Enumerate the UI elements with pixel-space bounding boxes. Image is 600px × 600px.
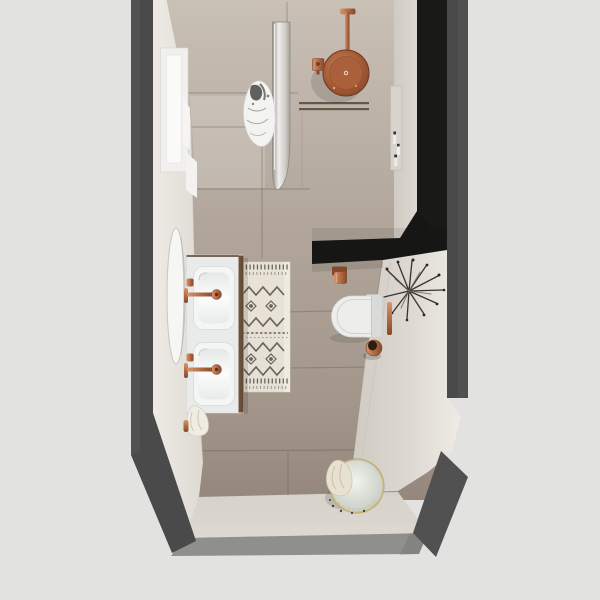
- double-vanity[interactable]: [184, 255, 248, 414]
- black-wall-northeast: [417, 0, 447, 247]
- window-glass: [167, 55, 182, 163]
- bathroom-render-canvas: [0, 0, 600, 600]
- wall-mirror[interactable]: [167, 228, 185, 364]
- copper-towel-hook[interactable]: [332, 267, 347, 285]
- vanity-wood-edge: [239, 256, 244, 413]
- laundry-basket[interactable]: [325, 459, 385, 515]
- wall-hung-toilet[interactable]: [330, 295, 383, 344]
- south-wall-face: [184, 492, 428, 538]
- glass-shower-screen[interactable]: [273, 22, 291, 190]
- outer-wall-left-light: [131, 0, 140, 455]
- shower-arm: [345, 12, 350, 54]
- copper-flush-bar[interactable]: [387, 302, 392, 335]
- copper-towel-bar[interactable]: [184, 420, 189, 432]
